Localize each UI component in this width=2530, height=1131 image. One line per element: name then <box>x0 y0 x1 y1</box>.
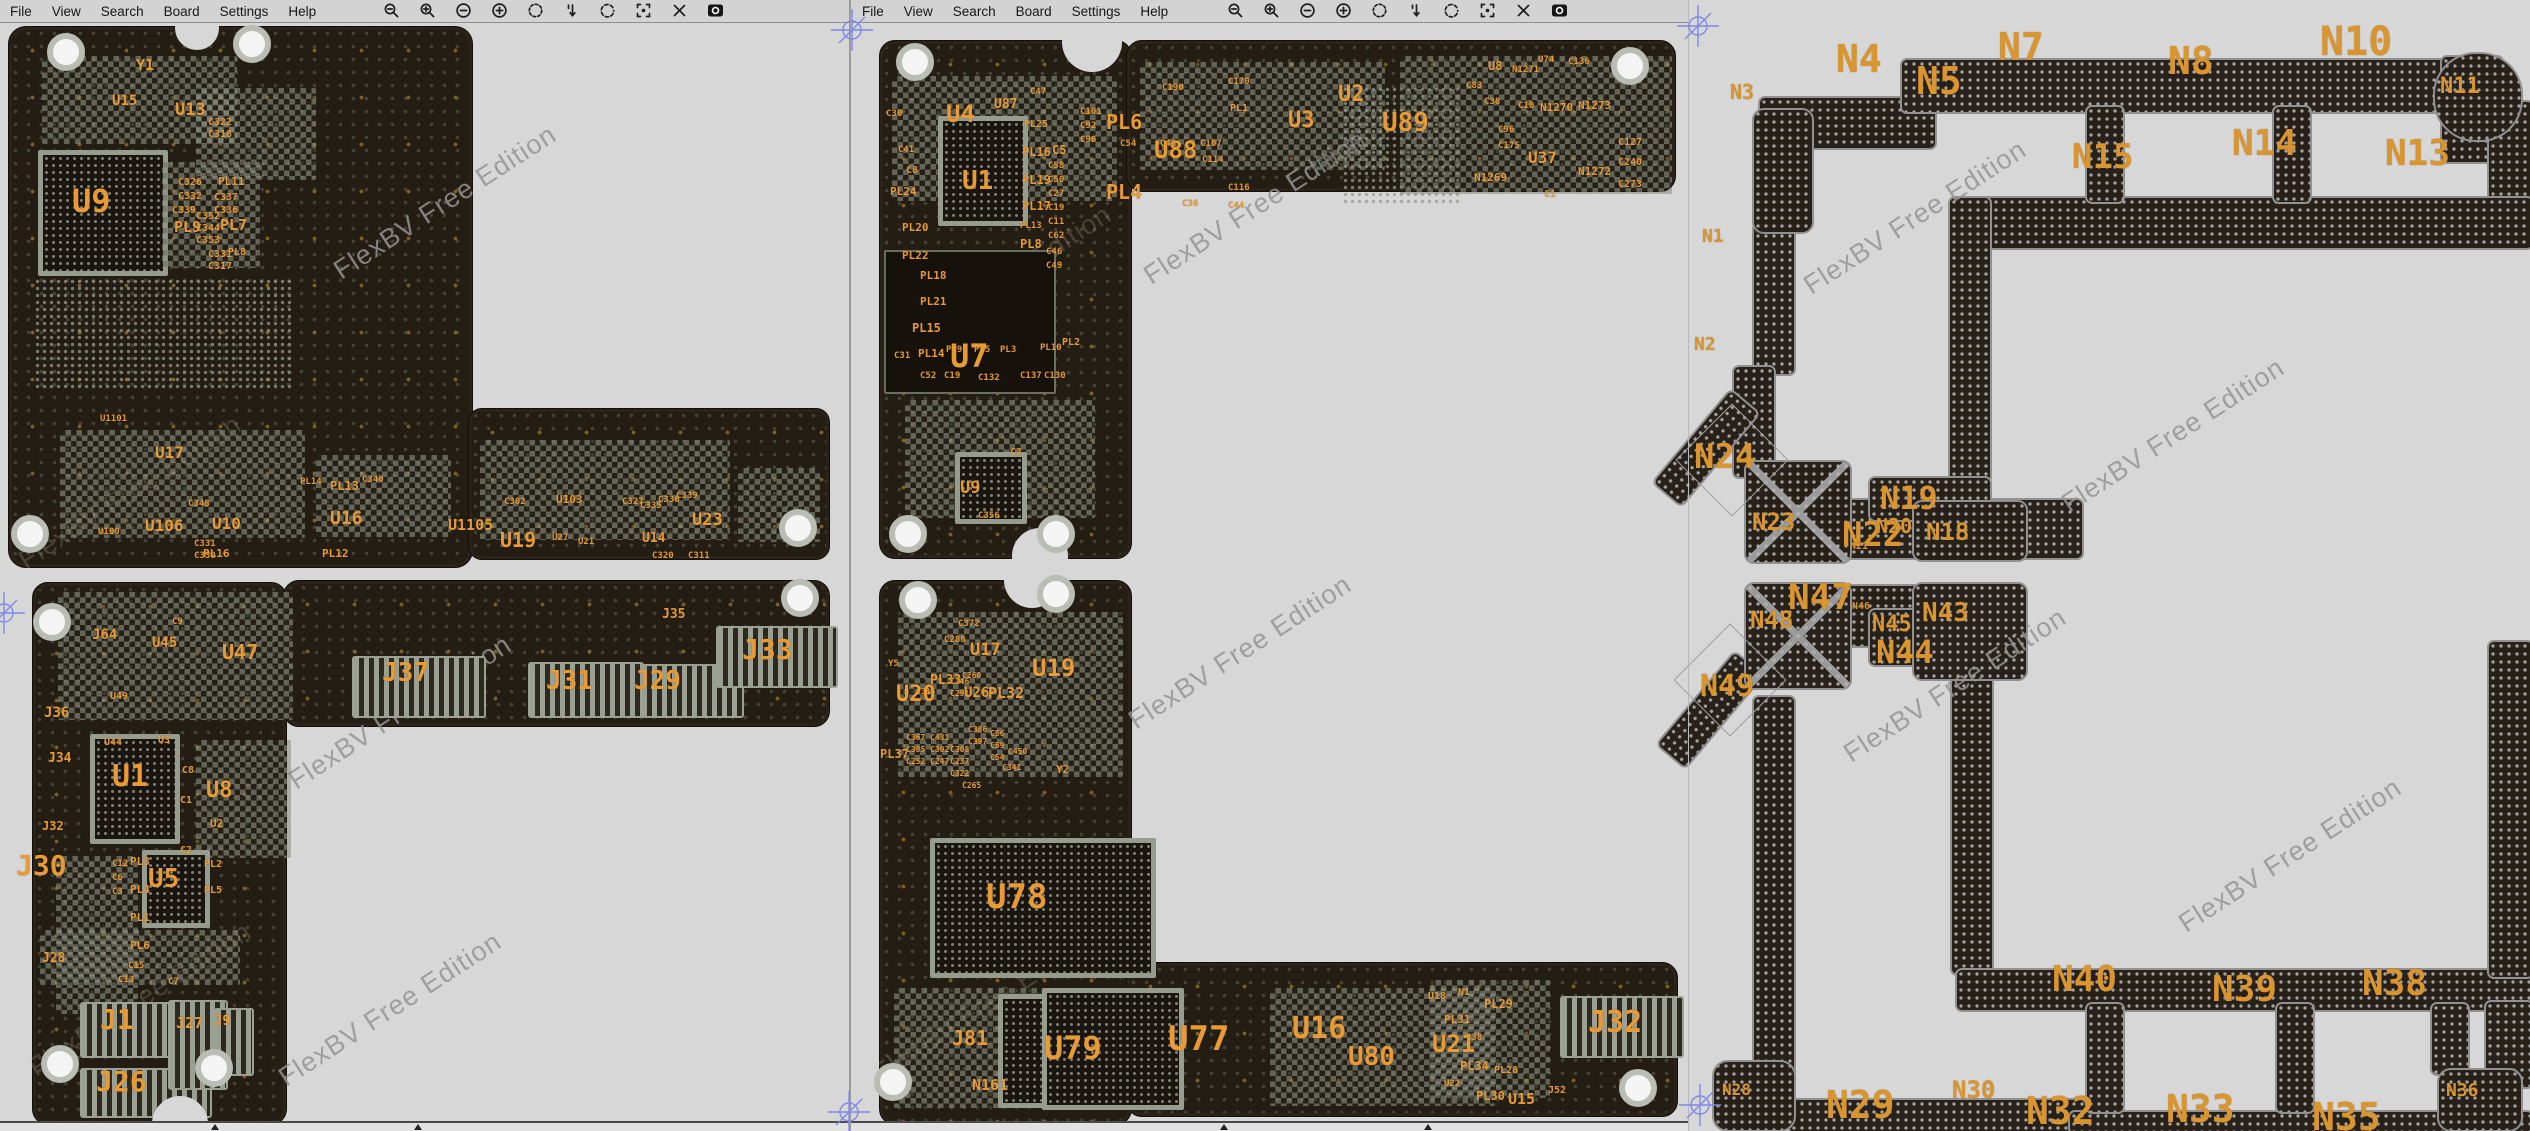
component-label: PL13 <box>1020 222 1042 231</box>
net-label: N15 <box>2072 140 2133 174</box>
component-label: U100 <box>98 528 120 537</box>
component-label: C114 <box>1202 156 1224 165</box>
scroll-tick[interactable] <box>211 1124 219 1130</box>
component-label: C337 <box>214 193 238 203</box>
component-label: U14 <box>642 532 665 545</box>
center-target-icon[interactable] <box>1479 2 1496 19</box>
component-label: C101 <box>1080 108 1102 117</box>
component-label: U7 <box>950 340 989 372</box>
component-label: C137 <box>1020 372 1042 381</box>
component-label: C43 <box>1160 140 1176 149</box>
component-label: C385 <box>906 746 925 754</box>
component-label: PL1 <box>1230 104 1248 114</box>
board-bottom-middle-screw-hole <box>1619 1069 1657 1107</box>
watermark-text: FlexBV Free Edition <box>2056 352 2290 519</box>
flex-strip <box>1752 222 1796 376</box>
component-label: U106 <box>145 518 184 534</box>
component-label: C59 <box>990 742 1004 750</box>
component-label: C367 <box>906 734 925 742</box>
net-label: N18 <box>1926 520 1969 544</box>
camera-icon[interactable] <box>1551 2 1568 19</box>
component-label: C83 <box>1466 82 1482 91</box>
component-label: U18 <box>1428 992 1446 1002</box>
watermark-text: FlexBV Free Edition <box>1123 569 1357 736</box>
board-bottom-left-screw-hole <box>33 603 71 641</box>
component-label: U2 <box>1338 84 1365 106</box>
component-label: J36 <box>44 706 69 720</box>
component-label: PL8 <box>228 248 246 258</box>
component-label: J35 <box>662 608 685 621</box>
component-label: Y5 <box>888 660 899 669</box>
component-label: U1101 <box>100 415 127 424</box>
net-label: N30 <box>1952 1078 1995 1102</box>
component-label: C260 <box>962 672 981 680</box>
component-label: PL22 <box>902 250 929 261</box>
component-label: C27 <box>1048 190 1064 199</box>
menu-board[interactable]: Board <box>1006 4 1062 19</box>
flip-vertical-icon[interactable] <box>563 2 580 19</box>
menu-search[interactable]: Search <box>943 4 1006 19</box>
component-label: U20 <box>896 684 936 706</box>
component-label: J37 <box>382 660 429 686</box>
component-label: C332 <box>178 192 202 202</box>
component-label: C320 <box>652 552 674 561</box>
component-label: C348 <box>188 500 210 509</box>
menu-help[interactable]: Help <box>278 4 326 19</box>
component-label: C12 <box>112 860 128 869</box>
flip-vertical-icon[interactable] <box>1407 2 1424 19</box>
component-label: C9 <box>172 618 183 627</box>
component-label: C38 <box>1484 98 1500 107</box>
component-label: PL29 <box>1484 998 1513 1010</box>
board-top-left-screw-hole <box>779 509 817 547</box>
board-bottom-middle-screw-hole <box>1037 575 1075 613</box>
component-label: C302 <box>930 746 949 754</box>
crosshair-icon <box>1675 3 1721 49</box>
component-label: C340 <box>362 476 384 485</box>
component-label: C11 <box>1048 218 1064 227</box>
component-label: U74 <box>1538 56 1554 65</box>
scroll-tick[interactable] <box>1424 1124 1432 1130</box>
component-label: PL21 <box>920 296 947 307</box>
component-label: U15 <box>1508 1092 1535 1107</box>
component-label: U80 <box>1348 1044 1395 1070</box>
component-label: J29 <box>634 668 681 694</box>
center-target-icon[interactable] <box>635 2 652 19</box>
net-label: N5 <box>1916 62 1962 100</box>
component-label: PL6 <box>130 940 150 951</box>
board-top-middle-screw-hole <box>1037 515 1075 553</box>
component-label: C38 <box>1466 1034 1482 1043</box>
component-label: U19 <box>1032 656 1075 680</box>
component-label: U8 <box>206 780 233 802</box>
component-label: J33 <box>742 636 793 664</box>
component-label: C10 <box>1518 102 1534 111</box>
board-top-middle-screw-hole <box>889 515 927 553</box>
component-label: C130 <box>1044 372 1066 381</box>
board-bottom-left-screw-hole <box>195 1049 233 1087</box>
component-label: C302 <box>504 498 526 507</box>
component-label: U22 <box>1444 1080 1460 1089</box>
net-label: N40 <box>2052 962 2117 998</box>
component-label: C317 <box>208 262 232 272</box>
component-label: N1271 <box>1512 66 1539 75</box>
component-label: PL20 <box>902 222 929 233</box>
net-label: N20 <box>1876 516 1912 536</box>
component-label: PL25 <box>1024 120 1048 130</box>
component-label: PL8 <box>1020 238 1042 250</box>
close-icon[interactable] <box>671 2 688 19</box>
net-label: N19 <box>1880 482 1938 514</box>
net-label: N33 <box>2166 1090 2235 1128</box>
component-label: C1 <box>1544 190 1556 200</box>
component-label: PL15 <box>912 322 941 334</box>
component-label: C49 <box>1046 262 1062 271</box>
component-label: C339 <box>676 492 698 501</box>
component-label: Y2 <box>1056 764 1069 775</box>
component-label: C190 <box>1162 84 1184 93</box>
component-label: C322 <box>208 118 232 128</box>
component-label: Y1 <box>136 58 154 73</box>
component-label: U9 <box>72 185 111 217</box>
component-label: C132 <box>978 374 1000 383</box>
flex-strip <box>2275 1002 2315 1114</box>
component-label: J81 <box>952 1028 988 1048</box>
board-top-middle-screw-hole <box>896 43 934 81</box>
net-label: N10 <box>2320 22 2392 62</box>
component-label: J34 <box>48 752 71 765</box>
component-label: C240 <box>1618 158 1642 168</box>
component-label: U17 <box>155 445 184 461</box>
menu-help[interactable]: Help <box>1130 4 1178 19</box>
component-label: U16 <box>330 510 363 528</box>
component-label: C19 <box>1048 204 1064 213</box>
component-label: U1105 <box>448 518 493 533</box>
component-label: C92 <box>1080 122 1096 131</box>
component-label: PL12 <box>322 548 349 559</box>
window-separator <box>1688 0 1689 1131</box>
flex-strip <box>2430 1002 2470 1076</box>
component-label: C54 <box>990 754 1004 762</box>
component-label: C311 <box>688 552 710 561</box>
net-label: N13 <box>2385 136 2450 172</box>
zoom-in-icon[interactable] <box>419 2 436 19</box>
net-label: N32 <box>2026 1092 2095 1130</box>
component-label: U78 <box>986 880 1047 914</box>
board-top-left-screw-hole <box>47 33 85 71</box>
component-label: J1 <box>100 1006 134 1034</box>
component-label: C318 <box>208 130 232 140</box>
component-label: U44 <box>104 738 122 748</box>
component-label: PL32 <box>988 686 1024 701</box>
camera-icon[interactable] <box>707 2 724 19</box>
component-label: U3 <box>158 736 170 746</box>
net-label: N23 <box>1752 510 1795 534</box>
flex-strip <box>1752 695 1796 1079</box>
component-label: C308 <box>950 746 969 754</box>
component-label: C15 <box>128 962 144 971</box>
component-label: PL11 <box>218 176 245 187</box>
board-bottom-left-screw-hole <box>781 579 819 617</box>
scroll-tick[interactable] <box>414 1124 422 1130</box>
board-top-middle-screw-hole <box>1611 47 1649 85</box>
component-label: U45 <box>152 636 177 650</box>
component-label: PL19 <box>1022 174 1051 186</box>
component-label: C56 <box>990 730 1004 738</box>
component-label: C1 <box>180 796 192 806</box>
component-label: U37 <box>1528 150 1557 166</box>
component-label: C8 <box>906 166 918 176</box>
component-label: C7 <box>168 978 179 987</box>
component-label: C13 <box>118 976 134 985</box>
component-label: C31 <box>894 352 910 361</box>
net-label: N2 <box>1694 336 1716 354</box>
net-label: N48 <box>1750 608 1793 632</box>
component-label: C356 <box>978 512 1000 521</box>
component-label: J28 <box>42 952 65 965</box>
net-label: N29 <box>1826 1086 1895 1124</box>
component-label: C288 <box>944 636 966 645</box>
component-label: N1269 <box>1474 172 1507 183</box>
component-label: N1270 <box>1540 102 1573 113</box>
component-label: C116 <box>1228 184 1250 193</box>
component-label: C54 <box>1120 140 1136 149</box>
board-bottom-middle-screw-hole <box>874 1063 912 1101</box>
component-label: PL13 <box>330 480 359 492</box>
circle-plus-icon[interactable] <box>491 2 508 19</box>
component-label: C175 <box>1498 142 1520 151</box>
component-label: U17 <box>970 642 1001 659</box>
net-label: N49 <box>1700 672 1754 702</box>
component-label: C372 <box>958 620 980 629</box>
component-label: C50 <box>1048 176 1064 185</box>
component-label: U16 <box>1292 1014 1346 1044</box>
net-label: N39 <box>2212 972 2277 1008</box>
component-label: J26 <box>96 1068 147 1096</box>
component-label: C96 <box>1080 136 1096 145</box>
menu-file[interactable]: File <box>0 4 42 19</box>
board-bottom-left-screw-hole <box>41 1045 79 1083</box>
component-label: U21 <box>578 538 594 547</box>
component-label: PL16 <box>203 548 230 559</box>
net-label: N14 <box>2232 126 2297 162</box>
net-label: N44 <box>1876 636 1934 668</box>
component-label: N1 <box>1458 988 1470 998</box>
component-label: C62 <box>1048 232 1064 241</box>
crosshair-icon <box>0 590 27 636</box>
circle-plus-icon[interactable] <box>1335 2 1352 19</box>
menu-view[interactable]: View <box>42 4 91 19</box>
component-label: PL2 <box>1062 338 1080 348</box>
component-label: PL37 <box>880 748 909 760</box>
component-label: PL14 <box>300 478 322 487</box>
component-label: U87 <box>994 98 1017 111</box>
scroll-tick[interactable] <box>1220 1124 1228 1130</box>
component-label: U1 <box>962 168 993 194</box>
flex-strip <box>2487 640 2530 979</box>
component-label: C5 <box>1052 144 1066 156</box>
close-icon[interactable] <box>1515 2 1532 19</box>
component-label: J64 <box>92 628 117 642</box>
component-label: U3 <box>1288 110 1315 132</box>
component-label: U1 <box>112 762 148 792</box>
component-label: U89 <box>1382 110 1429 136</box>
component-label: U10 <box>212 516 241 532</box>
component-label: U26 <box>964 686 989 700</box>
net-label: N47 <box>1788 580 1853 616</box>
net-label: N3 <box>1730 82 1754 102</box>
flex-pad <box>1752 108 1814 234</box>
component-label: C58 <box>1048 162 1064 171</box>
menu-settings[interactable]: Settings <box>210 4 279 19</box>
component-label: U19 <box>500 530 536 550</box>
flex-strip <box>1958 196 2530 250</box>
component-label: C170 <box>1228 78 1250 87</box>
component-label: N1273 <box>1578 100 1611 111</box>
component-label: U5 <box>148 866 179 892</box>
component-label: C344 <box>196 224 220 234</box>
component-label: U8 <box>1488 60 1502 72</box>
component-label: PL5 <box>204 886 222 896</box>
net-label: N35 <box>2312 1098 2381 1131</box>
component-label: C46 <box>1046 248 1062 257</box>
component-label: PL24 <box>890 186 917 197</box>
component-label: PL3 <box>1000 346 1016 355</box>
board-bottom-middle-screw-hole <box>899 581 937 619</box>
net-label: N21 <box>1850 542 1868 552</box>
zoom-out-icon[interactable] <box>1227 2 1244 19</box>
component-label: N1272 <box>1578 166 1611 177</box>
board-top-left-screw-hole <box>11 515 49 553</box>
component-label: J31 <box>546 668 593 694</box>
component-label: PL16 <box>1022 146 1051 158</box>
crosshair-icon <box>826 1089 872 1131</box>
net-label: N11 <box>2440 76 2480 98</box>
rotate-ccw-icon[interactable] <box>1443 2 1460 19</box>
component-label: C252 <box>906 758 925 766</box>
component-label: C326 <box>178 178 202 188</box>
component-label: C386 <box>968 726 987 734</box>
watermark-text: FlexBV Free Edition <box>2173 772 2407 939</box>
component-label: C397 <box>968 738 987 746</box>
component-label: PL34 <box>1460 1060 1489 1072</box>
component-label: C107 <box>1200 140 1222 149</box>
component-label: J32 <box>1588 1008 1642 1038</box>
component-label: U79 <box>1044 1032 1102 1064</box>
component-label: PL10 <box>1040 344 1062 353</box>
net-label: N46 <box>1852 602 1870 612</box>
net-label: N36 <box>2446 1082 2479 1100</box>
window-separator <box>849 0 851 1131</box>
component-label: PL14 <box>918 348 945 359</box>
component-label: J32 <box>42 820 64 832</box>
component-label: J52 <box>1548 1086 1566 1096</box>
component-label: PL4 <box>130 884 150 895</box>
component-label: C431 <box>930 734 949 742</box>
rotate-ccw-icon[interactable] <box>599 2 616 19</box>
component-label: C44 <box>1228 202 1244 211</box>
app-canvas[interactable]: FileViewSearchBoardSettingsHelpFileViewS… <box>0 0 2530 1131</box>
component-label: PL4 <box>1106 182 1142 202</box>
menu-search[interactable]: Search <box>91 4 154 19</box>
board-top-left-screw-hole <box>233 25 271 63</box>
component-label: C6 <box>112 874 123 883</box>
component-label: C52 <box>920 372 936 381</box>
component-label: PL7 <box>220 218 247 233</box>
component-label: U23 <box>692 512 723 529</box>
component-label: C339 <box>172 206 196 216</box>
component-label: C273 <box>1618 180 1642 190</box>
circle-minus-icon[interactable] <box>455 2 472 19</box>
net-label: N24 <box>1694 440 1755 474</box>
component-label: U77 <box>1168 1022 1229 1056</box>
rotate-icon[interactable] <box>527 2 544 19</box>
component-label: C47 <box>1030 88 1046 97</box>
crosshair-icon <box>829 7 875 53</box>
component-label: C8 <box>182 766 194 776</box>
component-label: C41 <box>898 146 914 155</box>
component-label: J27 <box>176 1016 203 1031</box>
component-label: PL18 <box>920 270 947 281</box>
component-label: J9 <box>214 1014 231 1028</box>
component-label: C30 <box>886 110 902 119</box>
net-label: N8 <box>2168 42 2214 80</box>
win2-toolbar <box>1227 2 1568 20</box>
component-label: C136 <box>1568 58 1590 67</box>
net-label: N28 <box>1722 1082 1751 1098</box>
net-label: N43 <box>1922 600 1969 626</box>
component-label: PL28 <box>1494 1066 1518 1076</box>
win1-toolbar <box>383 2 724 20</box>
component-label: J30 <box>16 852 67 880</box>
component-label: PL30 <box>1476 1090 1505 1102</box>
component-label: PL6 <box>1106 112 1142 132</box>
component-label: PL3 <box>130 856 150 867</box>
menu-board[interactable]: Board <box>154 4 210 19</box>
menu-settings[interactable]: Settings <box>1062 4 1131 19</box>
component-label: C265 <box>962 782 981 790</box>
component-label: C450 <box>1008 748 1027 756</box>
component-label: C3 <box>112 888 123 897</box>
component-label: PL2 <box>204 860 222 870</box>
board-top-left-component-cluster <box>34 278 292 390</box>
component-label: U47 <box>222 642 258 662</box>
net-label: N1 <box>1702 228 1724 246</box>
component-label: N161 <box>972 1078 1008 1093</box>
net-label: N7 <box>1998 28 2044 66</box>
component-label: U15 <box>112 94 137 108</box>
component-label: C2 <box>1010 448 1022 458</box>
component-label: U2 <box>210 818 223 829</box>
component-label: C341 <box>1002 764 1021 772</box>
component-label: C353 <box>196 236 220 246</box>
zoom-in-icon[interactable] <box>1263 2 1280 19</box>
component-label: PL1 <box>130 912 150 923</box>
flex-strip <box>1950 672 1994 976</box>
rotate-icon[interactable] <box>1371 2 1388 19</box>
net-label: N38 <box>2362 966 2427 1002</box>
component-label: PL17 <box>1022 200 1051 212</box>
circle-minus-icon[interactable] <box>1299 2 1316 19</box>
zoom-out-icon[interactable] <box>383 2 400 19</box>
component-label: U9 <box>960 480 980 497</box>
component-label: C127 <box>1618 138 1642 148</box>
menu-view[interactable]: View <box>894 4 943 19</box>
component-label: U49 <box>110 692 128 702</box>
component-label: C322 <box>950 770 969 778</box>
component-label: U103 <box>556 494 583 505</box>
component-label: C247 <box>930 758 949 766</box>
